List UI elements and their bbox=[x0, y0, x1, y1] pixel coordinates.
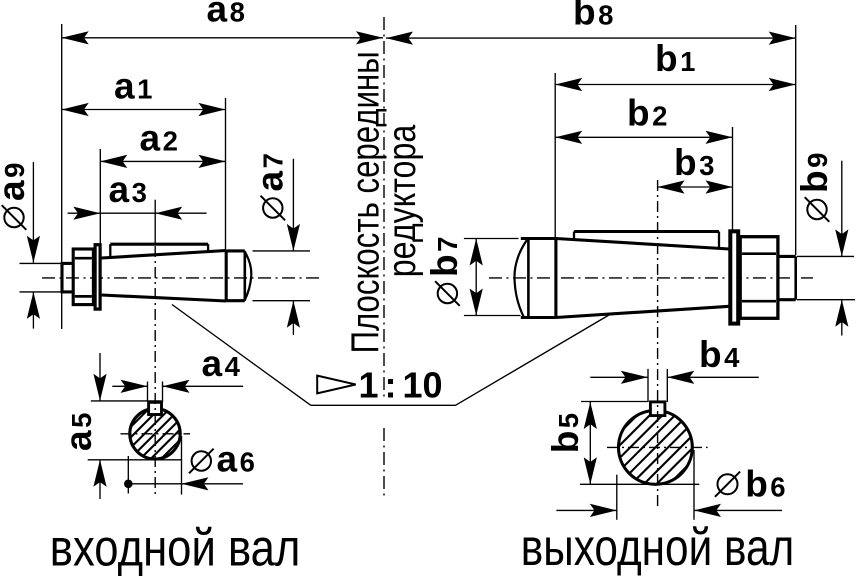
svg-text:a9: a9 bbox=[0, 163, 32, 201]
svg-text:редуктора: редуктора bbox=[381, 124, 424, 277]
svg-text:b6: b6 bbox=[745, 463, 785, 504]
svg-text:b8: b8 bbox=[573, 0, 613, 33]
svg-text:a2: a2 bbox=[140, 117, 178, 158]
svg-text:a5: a5 bbox=[58, 413, 99, 451]
svg-text:a8: a8 bbox=[207, 0, 245, 29]
svg-text:входной вал: входной вал bbox=[50, 518, 301, 576]
svg-text:b1: b1 bbox=[655, 38, 695, 79]
svg-text:a3: a3 bbox=[109, 169, 147, 210]
svg-text:a6: a6 bbox=[217, 438, 255, 479]
svg-text:b3: b3 bbox=[674, 142, 714, 183]
svg-text:a7: a7 bbox=[250, 153, 291, 191]
svg-text:b4: b4 bbox=[699, 334, 740, 375]
svg-text:выходной вал: выходной вал bbox=[521, 518, 794, 576]
svg-text:1:10: 1:10 bbox=[359, 364, 443, 405]
svg-text:b7: b7 bbox=[424, 237, 465, 277]
svg-text:b9: b9 bbox=[794, 153, 835, 193]
svg-text:b5: b5 bbox=[545, 413, 586, 453]
svg-text:b2: b2 bbox=[627, 92, 667, 133]
svg-text:a1: a1 bbox=[114, 66, 152, 107]
